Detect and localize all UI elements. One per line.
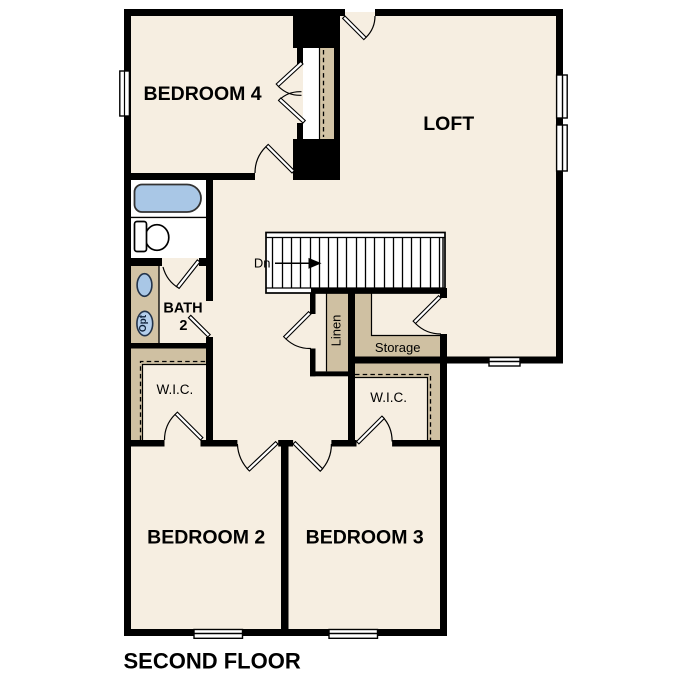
svg-text:SECOND FLOOR: SECOND FLOOR (124, 649, 301, 674)
svg-text:BEDROOM 3: BEDROOM 3 (306, 526, 424, 548)
svg-text:W.I.C.: W.I.C. (370, 390, 407, 405)
svg-text:Linen: Linen (329, 315, 344, 347)
svg-text:2: 2 (179, 318, 187, 334)
svg-text:LOFT: LOFT (423, 113, 474, 135)
svg-text:BEDROOM 2: BEDROOM 2 (147, 526, 265, 548)
svg-text:Opt: Opt (138, 314, 149, 332)
svg-text:W.I.C.: W.I.C. (157, 382, 194, 397)
svg-text:Storage: Storage (375, 340, 421, 355)
svg-text:BEDROOM 4: BEDROOM 4 (144, 83, 262, 105)
svg-text:Dn: Dn (254, 256, 271, 271)
svg-text:BATH: BATH (163, 301, 202, 317)
